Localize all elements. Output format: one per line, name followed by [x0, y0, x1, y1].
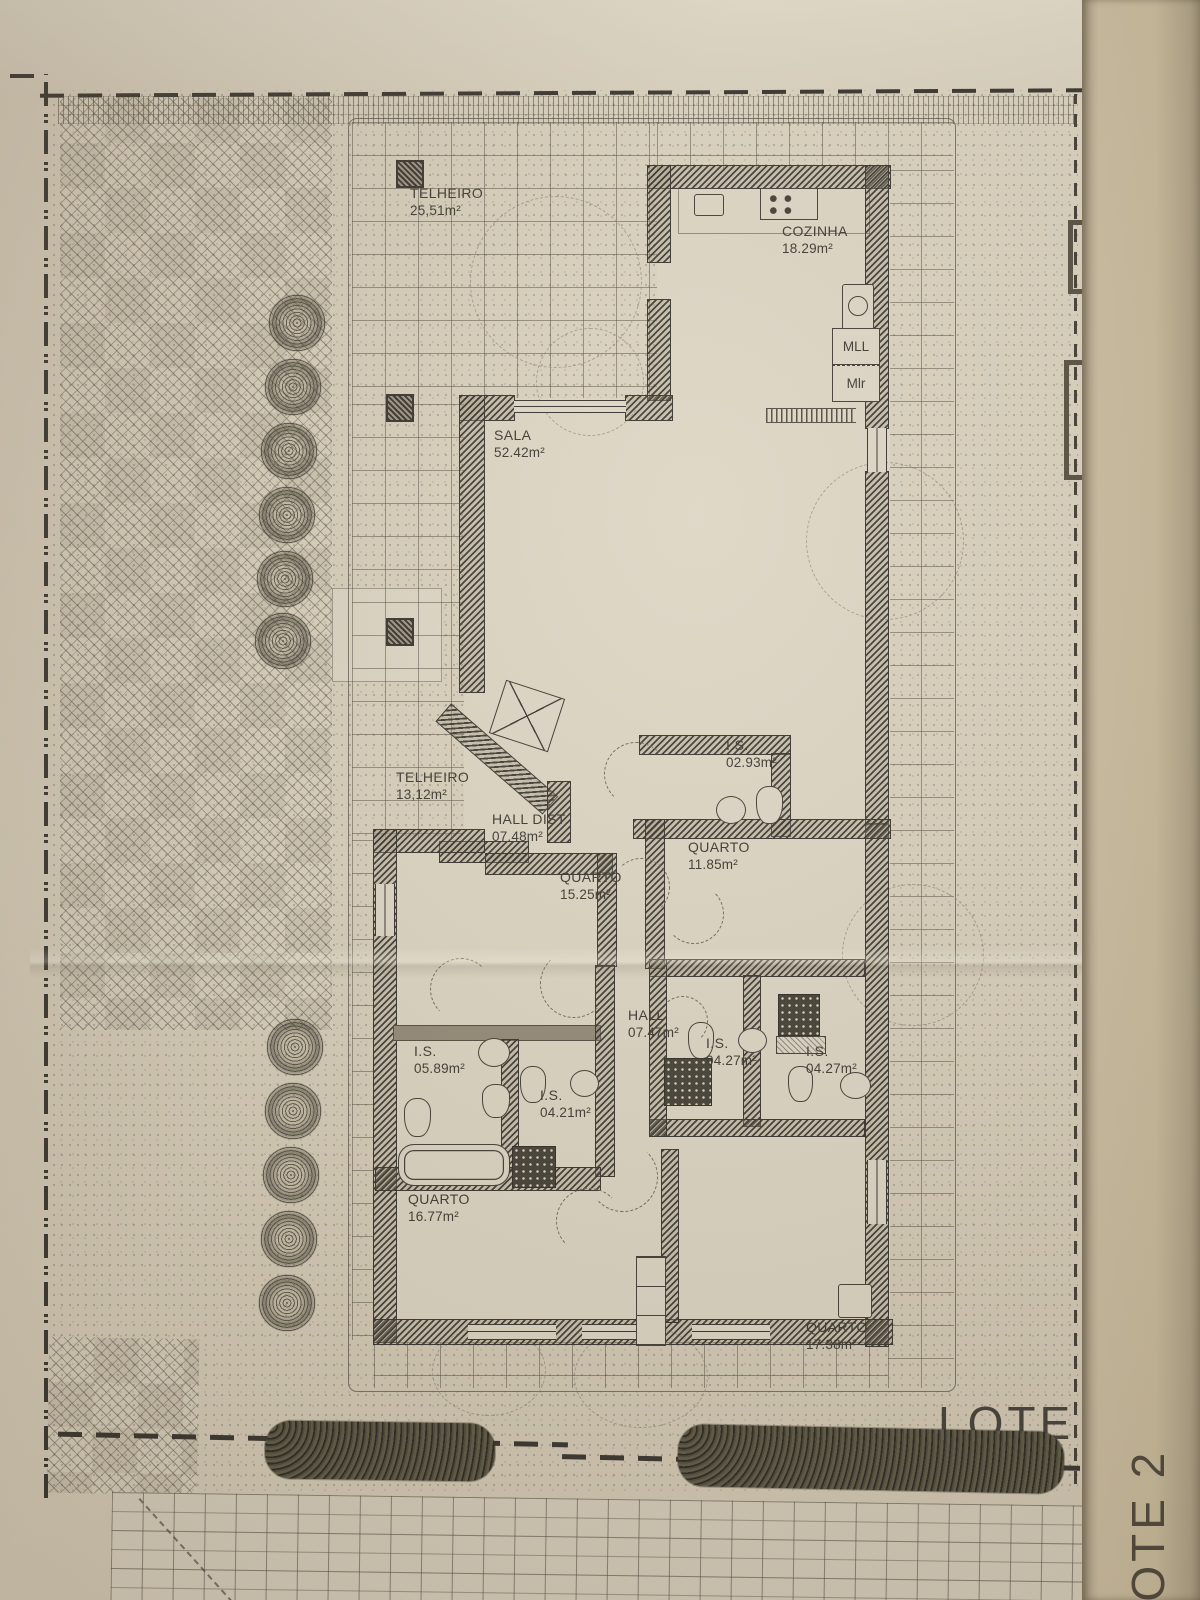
tiled-strip-top: [657, 122, 953, 170]
wall-segment: [650, 1120, 864, 1136]
room-name: QUARTO: [806, 1320, 868, 1334]
window-symbol: [867, 1160, 887, 1224]
room-area: 16.77m²: [408, 1210, 470, 1224]
room-name: SALA: [494, 428, 545, 442]
wardrobe-icon: [636, 1256, 666, 1346]
window-symbol: [867, 428, 887, 472]
room-name: QUARTO: [688, 840, 750, 854]
column-marker: [386, 394, 414, 422]
room-label-quarto-2: QUARTO 15.25m²: [560, 870, 622, 902]
kitchen-appliance-icon: [694, 194, 724, 216]
shower-icon: [778, 994, 820, 1036]
room-area: 52.42m²: [494, 446, 545, 460]
boundary-dash-stub: [10, 74, 44, 78]
room-name: HALL: [628, 1008, 679, 1022]
tree-icon: [262, 1146, 320, 1204]
hedge-row: [677, 1424, 1064, 1494]
door-arc: [588, 1142, 658, 1212]
wall-segment: [626, 396, 672, 420]
tree-icon: [264, 358, 322, 416]
boundary-dashed-left: [44, 74, 48, 1498]
paper-crease: [30, 948, 1090, 978]
room-name: I.S.: [540, 1088, 591, 1102]
room-label-hall: HALL 07.47m²: [628, 1008, 679, 1040]
room-label-telheiro-2: TELHEIRO 13,12m²: [396, 770, 469, 802]
room-area: 17.38m²: [806, 1338, 868, 1352]
column-marker: [396, 160, 424, 188]
door-arc: [664, 884, 724, 944]
room-label-hall-dist: HALL DIST. 07.48m²: [492, 812, 569, 844]
tiled-strip-right: [888, 170, 954, 1388]
room-area: 25,51m²: [410, 204, 483, 218]
floor-plan-photo: MLL Mlr TELHEIRO 25,51m² COZINHA 18.29m²…: [0, 0, 1200, 1600]
room-label-is-1: I.S. 02.93m²: [726, 738, 777, 770]
room-area: 07.48m²: [492, 830, 569, 844]
room-name: COZINHA: [782, 224, 848, 238]
room-name: I.S.: [726, 738, 777, 752]
mll-box: MLL: [832, 328, 880, 365]
column-marker: [386, 618, 414, 646]
tree-icon: [256, 550, 314, 608]
room-label-is-4: I.S. 04.27m²: [706, 1036, 757, 1068]
door-arc: [604, 742, 668, 806]
sink-drain-icon: [848, 296, 868, 316]
room-name: TELHEIRO: [396, 770, 469, 784]
room-name: I.S.: [414, 1044, 465, 1058]
shower-icon: [664, 1058, 712, 1106]
room-label-is-5: I.S. 04.27m²: [806, 1044, 857, 1076]
tree-icon: [264, 1082, 322, 1140]
wall-segment: [648, 166, 890, 188]
bathtub-icon: [398, 1144, 510, 1186]
wall-segment: [866, 472, 888, 824]
mlr-label: Mlr: [847, 376, 866, 391]
room-area: 05.89m²: [414, 1062, 465, 1076]
tree-icon: [258, 1274, 316, 1332]
lot2-label: LOTE 2: [1121, 1440, 1171, 1600]
tree-icon: [258, 486, 316, 544]
toilet-icon: [756, 786, 783, 824]
room-label-quarto-4: QUARTO 17.38m²: [806, 1320, 868, 1352]
room-label-is-3: I.S. 04.21m²: [540, 1088, 591, 1120]
tree-icon: [260, 422, 318, 480]
room-area: 04.21m²: [540, 1106, 591, 1120]
radiator-icon: [766, 408, 856, 423]
room-area: 02.93m²: [726, 756, 777, 770]
window-symbol: [692, 1324, 770, 1340]
room-area: 15.25m²: [560, 888, 622, 902]
room-area: 04.27m²: [806, 1062, 857, 1076]
boundary-dashed-fold: [1074, 94, 1077, 1484]
mlr-box: Mlr: [832, 365, 880, 402]
room-label-quarto-3: QUARTO 16.77m²: [408, 1192, 470, 1224]
room-area: 07.47m²: [628, 1026, 679, 1040]
room-name: I.S.: [706, 1036, 757, 1050]
wall-segment: [648, 300, 670, 400]
room-name: HALL DIST.: [492, 812, 569, 826]
room-name: TELHEIRO: [410, 186, 483, 200]
washbasin-icon: [840, 1072, 871, 1099]
room-area: 18.29m²: [782, 242, 848, 256]
room-name: I.S.: [806, 1044, 857, 1058]
window-symbol: [514, 400, 626, 413]
mll-label: MLL: [843, 339, 869, 354]
wall-segment: [460, 396, 484, 692]
washbasin-icon: [478, 1038, 510, 1067]
interior-bedroom-wing: [374, 840, 890, 1342]
bidet-icon: [482, 1084, 510, 1118]
tree-icon: [268, 294, 326, 352]
sidewalk-paving: [110, 1492, 1200, 1600]
hedge-row: [265, 1420, 496, 1481]
wall-segment: [648, 166, 670, 262]
room-area: 11.85m²: [688, 858, 750, 872]
room-label-cozinha: COZINHA 18.29m²: [782, 224, 848, 256]
paving-basketweave: [47, 1337, 200, 1496]
window-symbol: [375, 884, 395, 936]
tree-icon: [266, 1018, 324, 1076]
stove-icon: [760, 188, 818, 220]
furniture-icon: [838, 1284, 872, 1318]
paper-fold: [1082, 0, 1200, 1600]
room-label-sala: SALA 52.42m²: [494, 428, 545, 460]
washbasin-icon: [716, 796, 746, 824]
room-label-telheiro-1: TELHEIRO 25,51m²: [410, 186, 483, 218]
room-name: QUARTO: [560, 870, 622, 884]
tiled-strip-left-lower: [352, 840, 374, 1340]
wall-segment: [650, 960, 666, 1136]
tree-icon: [260, 1210, 318, 1268]
window-symbol: [468, 1324, 556, 1340]
photo-top-edge: [0, 0, 1200, 14]
room-area: 13,12m²: [396, 788, 469, 802]
room-name: QUARTO: [408, 1192, 470, 1206]
tree-icon: [254, 612, 312, 670]
wall-segment: [634, 820, 890, 838]
toilet-icon: [404, 1098, 431, 1137]
room-label-is-2: I.S. 05.89m²: [414, 1044, 465, 1076]
shower-icon: [512, 1146, 556, 1188]
room-label-quarto-1: QUARTO 11.85m²: [688, 840, 750, 872]
room-area: 04.27m²: [706, 1054, 757, 1068]
